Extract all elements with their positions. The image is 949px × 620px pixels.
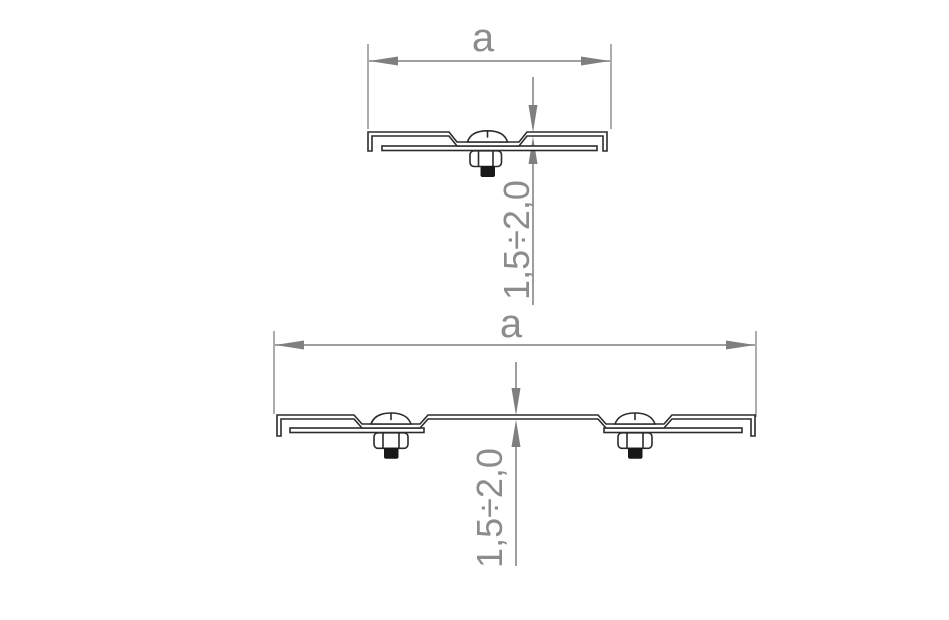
upper-width-label: a xyxy=(472,16,495,60)
lower-width-label: a xyxy=(500,302,523,346)
arrowhead-right-icon xyxy=(726,341,755,350)
arrowhead-right-icon xyxy=(581,57,610,66)
lower-bracket-view: a 1,5÷2,0 xyxy=(274,302,756,568)
hex-nut xyxy=(470,151,502,167)
lower-bolt-right xyxy=(615,413,655,458)
bolt-shank-end xyxy=(481,167,495,177)
arrowhead-down-icon xyxy=(512,388,521,416)
lower-thickness-dimension: 1,5÷2,0 xyxy=(469,362,521,568)
upper-thickness-label: 1,5÷2,0 xyxy=(496,180,537,300)
technical-drawing-page: a 1,5÷2,0 xyxy=(0,0,949,620)
arrowhead-left-icon xyxy=(275,341,304,350)
arrowhead-down-icon xyxy=(529,105,538,133)
arrowhead-left-icon xyxy=(369,57,398,66)
bracket-cross-section-drawing: a 1,5÷2,0 xyxy=(0,0,949,620)
hex-nut xyxy=(618,433,652,449)
lower-bolt-left xyxy=(371,413,411,458)
upper-bracket-view: a 1,5÷2,0 xyxy=(368,16,611,305)
bolt-shank-end xyxy=(629,448,643,458)
upper-width-dimension: a xyxy=(368,16,611,129)
lower-thickness-label: 1,5÷2,0 xyxy=(469,448,510,568)
bolt-shank-end xyxy=(385,448,399,458)
hex-nut xyxy=(374,433,408,449)
upper-bolt xyxy=(468,131,508,177)
arrowhead-up-icon xyxy=(512,420,521,448)
upper-thickness-dimension: 1,5÷2,0 xyxy=(496,77,538,305)
